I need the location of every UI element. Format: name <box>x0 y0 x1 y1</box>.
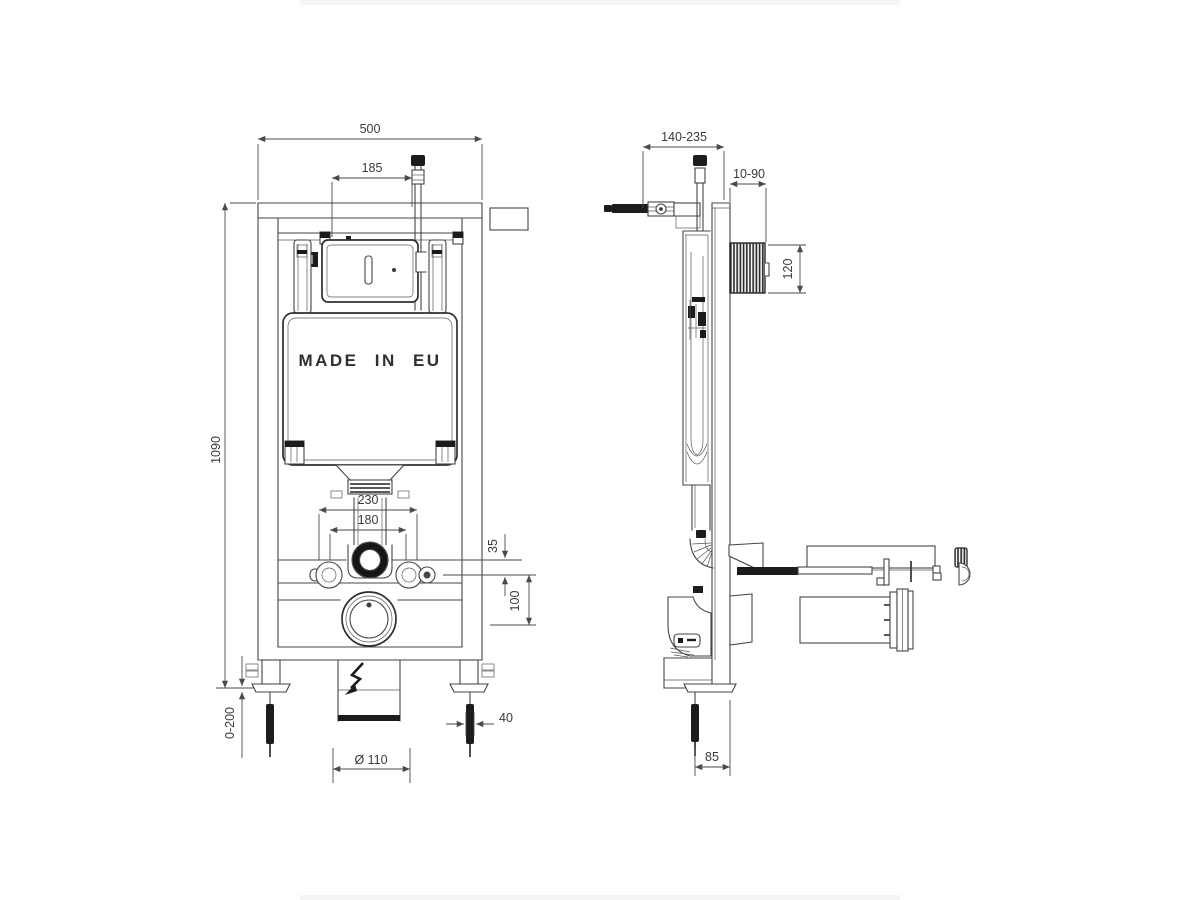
svg-text:40: 40 <box>499 711 513 725</box>
dim-plate-height: 120 <box>768 245 806 293</box>
front-view: MADE IN EU <box>209 122 536 783</box>
drain-outlet <box>342 592 396 646</box>
float-outline <box>691 252 703 455</box>
svg-text:140-235: 140-235 <box>661 130 707 144</box>
outlet-sleeve <box>800 589 913 651</box>
svg-text:185: 185 <box>362 161 383 175</box>
page-edge-bottom <box>300 895 900 900</box>
svg-text:500: 500 <box>360 122 381 136</box>
accessory-parts <box>955 548 970 585</box>
mounting-plate <box>807 546 935 568</box>
side-view: 140-235 10-90 120 85 <box>604 130 970 776</box>
svg-text:120: 120 <box>781 259 795 280</box>
dim-wall-range: 10-90 <box>730 167 766 242</box>
side-threaded-rod <box>691 704 699 742</box>
fixing-rod-threaded <box>737 567 798 575</box>
cistern-tank: MADE IN EU <box>283 313 457 465</box>
tank-clip-right <box>436 441 455 464</box>
technical-drawing-page: MADE IN EU <box>0 0 1200 900</box>
drain-elbow <box>668 586 711 657</box>
dim-leg-adjust: 0-200 <box>223 656 242 758</box>
window-pin <box>392 268 396 272</box>
flow-arrow <box>351 663 363 688</box>
dim-foot-offset: 85 <box>695 700 730 776</box>
dim-frame-height: 1090 <box>209 203 256 688</box>
dim-rod-width: 40 <box>446 711 513 736</box>
svg-text:230: 230 <box>358 493 379 507</box>
leg-left <box>262 660 280 684</box>
svg-text:100: 100 <box>508 591 522 612</box>
flush-plate-window <box>308 240 440 302</box>
svg-text:10-90: 10-90 <box>733 167 765 181</box>
svg-text:85: 85 <box>705 750 719 764</box>
threaded-rod-left <box>266 704 274 744</box>
dim-depth-range: 140-235 <box>643 130 724 208</box>
dim-drain-drop: 100 <box>490 575 536 625</box>
rod-flange <box>884 559 889 585</box>
svg-text:1090: 1090 <box>209 436 223 464</box>
foot-plate-right <box>450 684 488 692</box>
flush-plate-profile <box>730 243 769 293</box>
tank-clip-left <box>285 441 304 464</box>
side-supply-assembly <box>604 155 707 231</box>
dim-pipe-offset: 185 <box>332 161 412 237</box>
page-edge-top <box>300 0 900 5</box>
frame-base <box>246 660 494 757</box>
fixing-rod-sleeve <box>798 567 872 574</box>
toilet-pan-profile <box>729 543 763 645</box>
svg-text:35: 35 <box>486 539 500 553</box>
supply-pipe-cap <box>693 155 707 166</box>
installation-frame-drawing: MADE IN EU <box>0 0 1200 900</box>
rod-nut <box>933 566 940 573</box>
made-in-eu-label: MADE IN EU <box>298 351 441 370</box>
side-foot <box>684 684 736 756</box>
drain-pipe <box>338 660 400 721</box>
plate-button <box>765 263 769 276</box>
leg-right <box>460 660 478 684</box>
frame-profile <box>664 203 730 688</box>
svg-text:180: 180 <box>358 513 379 527</box>
svg-text:Ø 110: Ø 110 <box>354 753 387 767</box>
svg-text:0-200: 0-200 <box>223 707 237 739</box>
flush-bend-fan <box>690 539 713 568</box>
window-bracket-right <box>416 252 426 272</box>
flush-bend-cap <box>696 530 706 538</box>
accessory-hook <box>959 563 970 585</box>
threaded-rod-right <box>466 704 474 744</box>
cistern-profile <box>683 231 710 538</box>
foot-plate-left <box>252 684 290 692</box>
dim-drain-diameter: Ø 110 <box>333 748 410 783</box>
wall-fixing-set <box>737 546 941 585</box>
side-connection-box <box>490 208 528 230</box>
